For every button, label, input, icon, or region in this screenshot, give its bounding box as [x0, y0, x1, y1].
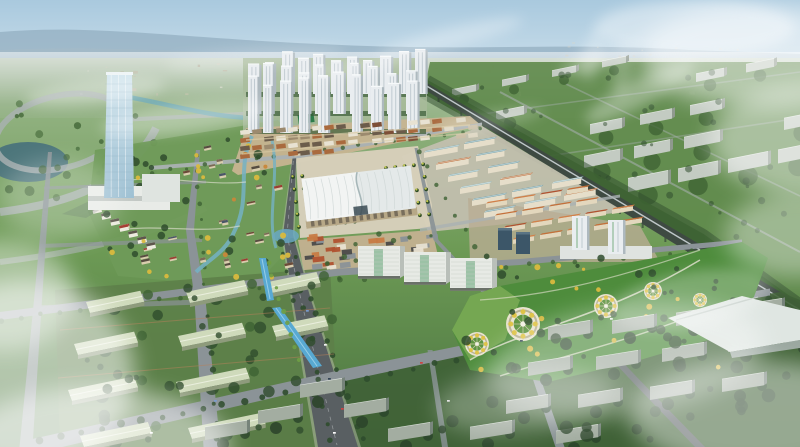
rendering-canvas: [0, 0, 800, 447]
aerial-city-rendering: Aerial perspective rendering of a planne…: [0, 0, 800, 447]
